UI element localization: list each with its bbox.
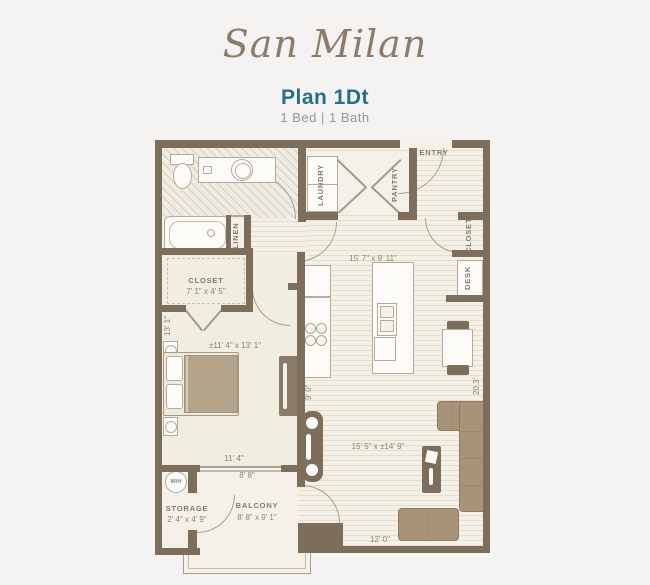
balcony-label: BALCONY <box>228 502 286 510</box>
wall-bedroom-closet-east <box>246 250 253 308</box>
bed-blanket <box>184 355 238 413</box>
wall-laundry-south <box>298 212 338 220</box>
balcony-railing-inner <box>188 553 306 569</box>
wall-balcony-block <box>298 523 343 553</box>
wall-east <box>483 148 490 553</box>
bedroom-closet-dims: 7' 1" x 4' 5" <box>178 288 234 297</box>
wall-bedroom-east <box>297 252 305 470</box>
cooktop-burner <box>305 323 316 334</box>
dishwasher <box>374 337 396 361</box>
sink-basin <box>380 320 394 332</box>
wall-closet-south-left <box>155 305 186 312</box>
wall-closet-south-right <box>221 305 253 312</box>
dining-table <box>442 329 473 367</box>
nightstand-lamp <box>165 421 177 433</box>
balcony-width-dim: 8' 8" <box>228 472 266 481</box>
linen-label: LINEN <box>231 219 240 252</box>
wall-top-left <box>155 140 400 148</box>
bedroom-width-dim: 11' 4" <box>214 455 254 464</box>
vanity-accessory <box>203 166 212 174</box>
living-width-dim: 12' 0" <box>362 536 398 545</box>
bedroom-dims: ±11' 4" x 13' 1" <box>195 342 275 351</box>
bedroom-balcony-slider <box>197 466 282 468</box>
living-dims: 15' 5" x ±14' 9" <box>340 443 416 452</box>
entry-label: ENTRY <box>414 149 454 157</box>
kitchen-dims: 15' 7" x 9' 11" <box>338 255 408 264</box>
wall-living-south <box>343 546 490 553</box>
cooktop-burner <box>316 335 327 346</box>
sink-basin <box>380 306 394 318</box>
wall-storage-stub-bottom <box>188 530 197 555</box>
floorplan-page: San Milan Plan 1Dt 1 Bed | 1 Bath <box>0 0 650 585</box>
bedroom-depth-dim: 13' 1" <box>163 312 172 340</box>
water-heater: W/H <box>165 471 187 493</box>
bed-pillow <box>166 384 183 409</box>
sofa-seam <box>452 403 453 429</box>
cooktop-burner <box>316 323 327 334</box>
wall-laundry-west <box>298 148 306 222</box>
bedroom-tv <box>283 363 287 409</box>
vanity-sink-basin <box>235 163 251 179</box>
wall-storage-stub-top <box>188 465 197 493</box>
wall-entry-closet-north <box>458 212 490 220</box>
media-console-knob <box>306 417 318 429</box>
bathtub-drain <box>207 229 215 237</box>
dining-chair <box>447 365 469 375</box>
toilet-bowl <box>173 163 192 189</box>
plan-title: Plan 1Dt <box>0 86 650 110</box>
storage-dims: 2' 4" x 4' 9" <box>156 516 218 525</box>
bedroom-closet-label: CLOSET <box>178 277 234 285</box>
bed-pillow <box>166 356 183 381</box>
entry-threshold <box>400 141 452 148</box>
media-console-knob <box>306 464 318 476</box>
laundry-label: LAUNDRY <box>316 163 325 207</box>
cooktop-burner <box>305 335 316 346</box>
living-depth-dim: 20.3' <box>472 372 481 400</box>
wall-balcony-east <box>297 470 305 487</box>
plan-specs: 1 Bed | 1 Bath <box>0 110 650 125</box>
media-console-panel <box>306 434 311 460</box>
wall-top-right <box>452 140 490 148</box>
community-name: San Milan <box>0 22 650 66</box>
blanket-fold <box>186 356 188 412</box>
wall-west <box>155 140 162 555</box>
kitchen-depth-dim: 9' 0" <box>304 380 313 404</box>
pantry-label: PANTRY <box>390 163 399 207</box>
entry-closet-label: CLOSET <box>464 219 473 253</box>
wall-bedroom-door-stub <box>288 283 298 290</box>
desk-label: DESK <box>463 262 472 294</box>
coffee-table-item <box>429 468 433 485</box>
bathtub-inner <box>169 221 226 249</box>
wall-desk-south <box>446 295 490 302</box>
loveseat-seam <box>428 511 429 538</box>
wall-linen-east <box>244 215 251 255</box>
storage-label: STORAGE <box>158 505 216 513</box>
balcony-dims: 8' 8" x 9' 1" <box>226 514 288 523</box>
wall-pantry-east <box>409 148 417 220</box>
refrigerator <box>303 265 331 297</box>
linen-shelf-line <box>231 215 244 217</box>
